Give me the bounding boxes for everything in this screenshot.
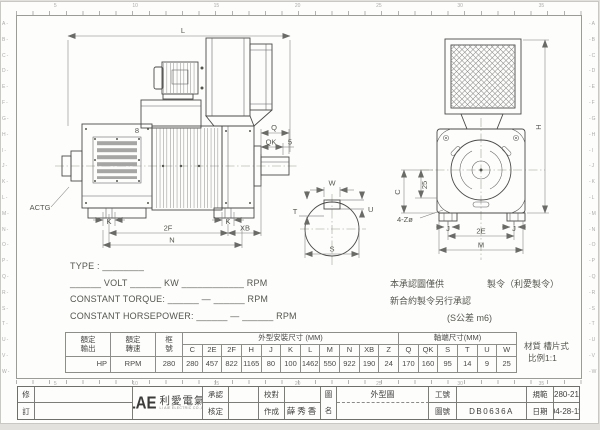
table-group-header-row: 額定輸出 額定轉速 框號 外型安裝尺寸 (MM) 軸端尺寸(MM) xyxy=(66,333,517,345)
dim-value-cell: 9 xyxy=(477,357,497,373)
dim-column-header: XB xyxy=(359,345,379,357)
logo-text: LAE xyxy=(133,393,156,413)
outline-dims-group-header: 外型安裝尺寸 (MM) xyxy=(183,333,399,345)
end-foot-left xyxy=(439,213,457,221)
dim-label-T: T xyxy=(293,207,298,216)
dim-label-XB: XB xyxy=(240,224,250,233)
torque-line: CONSTANT TORQUE: ______ — ______ RPM xyxy=(70,294,268,304)
dwg-no-value: DB0636A xyxy=(457,403,527,419)
note-tolerance: (S公差 m6) xyxy=(447,312,492,323)
type-line: TYPE : ________ xyxy=(70,261,145,271)
frame-value: 280 xyxy=(156,357,183,373)
dim-value-cell: 100 xyxy=(281,357,301,373)
material-note: 材質 槽片式 xyxy=(524,341,569,351)
date-label: 日期 xyxy=(527,403,554,419)
dim-column-header: K xyxy=(281,345,301,357)
dim-label-K-right: K xyxy=(225,217,230,226)
company-name-en: LI AIE ELECTRIC CO.,LTD xyxy=(159,407,203,411)
dim-label-2E: 2E xyxy=(476,227,485,236)
title-block: 修 訂 LAE 利愛電氣 LI AIE ELECTRIC CO.,LTD 承認 … xyxy=(17,386,580,420)
authorize-label: 核定 xyxy=(203,403,229,419)
dim-label-2F: 2F xyxy=(164,224,173,233)
dim-value-cell: 160 xyxy=(418,357,438,373)
dim-label-C: C xyxy=(393,189,402,195)
spec-text-block: TYPE : ________ ______ VOLT ______ KW __… xyxy=(69,261,297,321)
dimension-table: 額定輸出 額定轉速 框號 外型安裝尺寸 (MM) 軸端尺寸(MM) C2E2FH… xyxy=(65,332,517,373)
dim-value-cell: 14 xyxy=(457,357,477,373)
dim-label-H: H xyxy=(534,124,543,129)
blower-duct xyxy=(206,38,250,116)
dim-label-L: L xyxy=(181,26,185,35)
shaft-end-view: W T U S xyxy=(293,179,374,267)
dim-label-5: 5 xyxy=(288,138,292,147)
dim-column-header: M xyxy=(320,345,340,357)
revision-row-1 xyxy=(35,387,133,403)
work-no-label: 工號 xyxy=(429,387,457,403)
dim-value-cell: 25 xyxy=(497,357,517,373)
made-by-label: 作成 xyxy=(259,403,285,419)
dim-value-cell: 95 xyxy=(438,357,458,373)
dim-column-header: QK xyxy=(418,345,438,357)
dim-value-cell: 190 xyxy=(359,357,379,373)
dim-column-header: S xyxy=(438,345,458,357)
dim-label-4-Z: 4-Zø xyxy=(397,215,413,224)
duct-transition xyxy=(206,116,254,126)
motor-side-view: L Q QK 5 8 K K 2F XB N ACTG xyxy=(30,26,298,248)
dim-column-header: 2F xyxy=(222,345,242,357)
approve-value xyxy=(229,387,259,403)
dim-label-25: 25 xyxy=(420,181,429,189)
dim-column-header: U xyxy=(477,345,497,357)
dim-column-header: T xyxy=(457,345,477,357)
drawing-name-label: 圖 名 xyxy=(321,387,337,419)
company-name: 利愛電氣 xyxy=(159,396,203,407)
louver-grille xyxy=(97,141,137,179)
volt-line: ______ VOLT ______ KW ____________ RPM xyxy=(69,278,267,288)
dim-label-W: W xyxy=(328,179,336,188)
dim-column-header: W xyxy=(497,345,517,357)
drawing-name-value: 外型圖 xyxy=(337,387,429,403)
filter-neck xyxy=(461,114,503,129)
end-bracket xyxy=(222,126,254,208)
output-value: HP xyxy=(66,357,111,373)
dim-column-header: 2E xyxy=(202,345,222,357)
dim-column-header: L xyxy=(300,345,320,357)
dim-value-cell: 280 xyxy=(183,357,203,373)
proofread-value xyxy=(285,387,321,403)
filter-mesh xyxy=(451,45,515,108)
company-logo: LAE 利愛電氣 LI AIE ELECTRIC CO.,LTD xyxy=(133,387,203,419)
authorize-value xyxy=(229,403,259,419)
dim-value-cell: 24 xyxy=(379,357,399,373)
dim-value-cell: 170 xyxy=(399,357,419,373)
scale-note: 比例1:1 xyxy=(528,353,557,363)
note-approval-2: 新合約製令另行承認 xyxy=(390,295,471,306)
revision-row-2 xyxy=(35,403,133,419)
rated-output-header: 額定輸出 xyxy=(66,333,111,357)
proofread-label: 校對 xyxy=(259,387,285,403)
dim-label-8: 8 xyxy=(135,126,139,135)
dim-value-cell: 822 xyxy=(222,357,242,373)
blower-flange xyxy=(250,44,272,110)
dim-column-header: J xyxy=(261,345,281,357)
dim-label-Q: Q xyxy=(271,123,277,132)
dim-label-M: M xyxy=(478,241,484,250)
approve-label: 承認 xyxy=(203,387,229,403)
rated-speed-header: 額定轉速 xyxy=(111,333,156,357)
work-no-value xyxy=(457,387,527,403)
frame-no-header: 框號 xyxy=(156,333,183,357)
dim-column-header: Q xyxy=(399,345,419,357)
dim-value-cell: 922 xyxy=(340,357,360,373)
dim-column-header: N xyxy=(340,345,360,357)
dim-label-J-left: J xyxy=(446,224,450,233)
speed-value: RPM xyxy=(111,357,156,373)
spec-label: 規範 xyxy=(527,387,554,403)
made-by-value: 薛秀香 xyxy=(285,403,321,419)
note-order: 製令（利愛製令） xyxy=(487,278,559,289)
shaft-dims-group-header: 軸端尺寸(MM) xyxy=(399,333,517,345)
dim-label-S: S xyxy=(329,245,334,254)
end-foot-right xyxy=(507,213,525,221)
dim-column-header: C xyxy=(183,345,203,357)
horsepower-line: CONSTANT HORSEPOWER: ______ — ______ RPM xyxy=(70,311,297,321)
table-value-row: HP RPM 280 28045782211658010014625509221… xyxy=(66,357,517,373)
revision-label-top: 修 xyxy=(18,387,35,403)
dim-label-J-right: J xyxy=(512,224,516,233)
dim-value-cell: 1462 xyxy=(300,357,320,373)
dim-column-header: H xyxy=(241,345,261,357)
motor-end-view: H C 25 4-Zø J J 2E M xyxy=(393,39,549,260)
dim-column-header: Z xyxy=(379,345,399,357)
dim-value-cell: 457 xyxy=(202,357,222,373)
dim-value-cell: 550 xyxy=(320,357,340,373)
dim-value-cell: 1165 xyxy=(241,357,261,373)
date-value: 04-28-11 xyxy=(554,403,579,419)
spec-value: 280-21 xyxy=(554,387,579,403)
dim-label-N: N xyxy=(169,236,174,245)
dim-value-cell: 80 xyxy=(261,357,281,373)
drawing-name-value-2 xyxy=(337,403,429,419)
dwg-no-label: 圖號 xyxy=(429,403,457,419)
revision-label-bottom: 訂 xyxy=(18,403,35,419)
note-approval-1: 本承認圖僅供 xyxy=(390,278,444,289)
dim-label-QK: QK xyxy=(266,138,277,147)
foot-left xyxy=(88,208,146,218)
dim-label-U: U xyxy=(368,205,373,214)
dim-label-K-left: K xyxy=(106,217,111,226)
actg-label: ACTG xyxy=(30,203,51,212)
